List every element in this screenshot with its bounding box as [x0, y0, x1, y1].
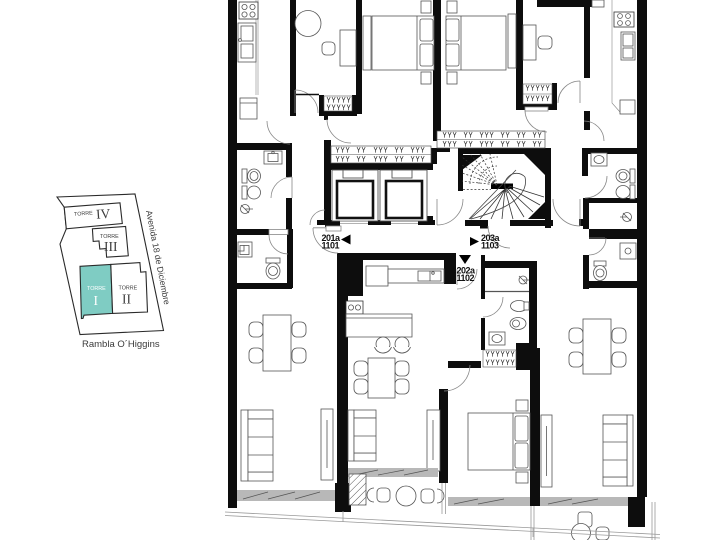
svg-text:II: II: [122, 292, 131, 307]
svg-text:I: I: [94, 293, 99, 308]
svg-text:1103: 1103: [481, 241, 499, 251]
svg-text:TORRE: TORRE: [87, 286, 106, 292]
svg-text:III: III: [104, 239, 118, 254]
svg-text:Rambla O´Higgins: Rambla O´Higgins: [82, 339, 160, 350]
svg-text:IV: IV: [96, 206, 112, 222]
svg-text:1102: 1102: [457, 273, 475, 283]
svg-text:1101: 1101: [322, 241, 340, 251]
